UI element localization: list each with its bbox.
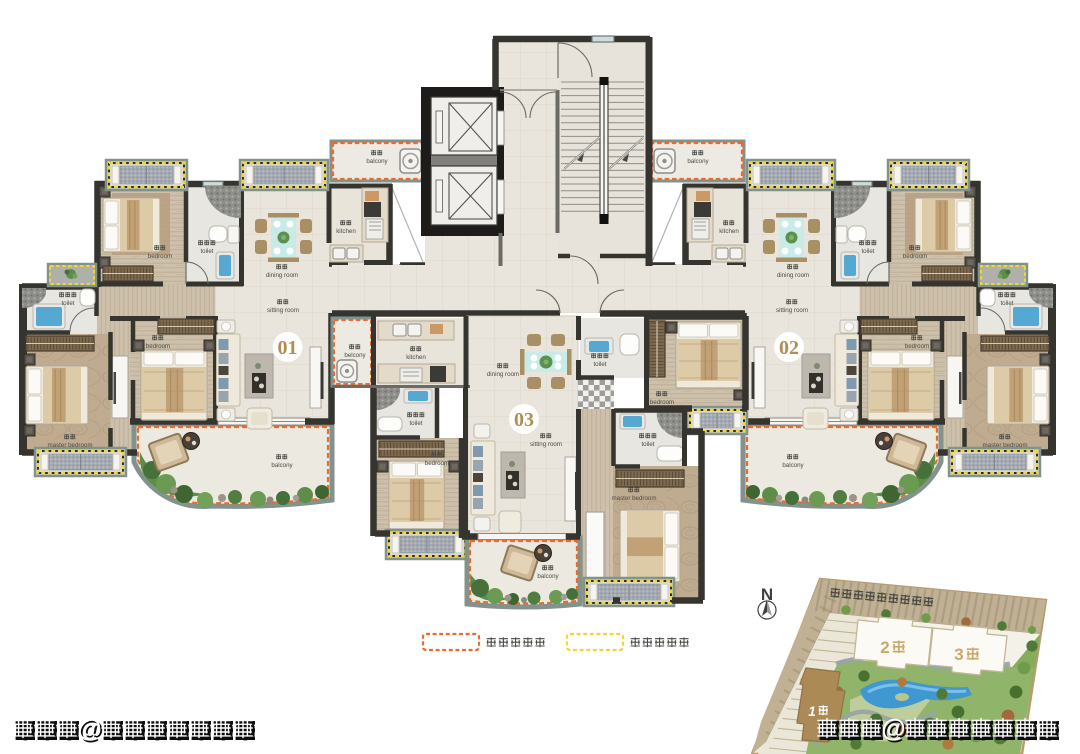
svg-text:kitchen: kitchen: [336, 228, 356, 235]
svg-text:master bedroom: master bedroom: [611, 495, 656, 502]
svg-text:2: 2: [880, 638, 889, 657]
svg-text:balcony: balcony: [271, 462, 293, 469]
svg-text:03: 03: [514, 409, 534, 431]
svg-text:bedroom: bedroom: [146, 343, 170, 350]
svg-text:toilet: toilet: [61, 300, 74, 307]
svg-text:balcony: balcony: [366, 158, 388, 165]
svg-text:sitting room: sitting room: [776, 307, 808, 314]
svg-text:balcony: balcony: [782, 462, 804, 469]
svg-text:master bedroom: master bedroom: [47, 442, 92, 449]
svg-text:3: 3: [954, 645, 963, 664]
svg-text:toilet: toilet: [409, 420, 422, 427]
svg-text:1: 1: [808, 704, 816, 719]
svg-text:bedroom: bedroom: [903, 253, 927, 260]
svg-text:balcony: balcony: [687, 158, 709, 165]
svg-text:kitchen: kitchen: [406, 354, 426, 361]
svg-text:belcony: belcony: [344, 352, 366, 359]
svg-text:sitting room: sitting room: [530, 441, 562, 448]
svg-text:toilet: toilet: [593, 361, 606, 368]
svg-text:01: 01: [278, 337, 298, 359]
svg-text:bedroom: bedroom: [148, 253, 172, 260]
svg-text:toilet: toilet: [200, 248, 213, 255]
svg-text:balcony: balcony: [537, 573, 559, 580]
svg-text:dining room: dining room: [266, 272, 298, 279]
svg-text:bedroom: bedroom: [905, 343, 929, 350]
svg-text:toilet: toilet: [641, 441, 654, 448]
svg-text:@: @: [881, 715, 905, 743]
svg-text:bedroom: bedroom: [650, 399, 674, 406]
svg-text:sitting room: sitting room: [267, 307, 299, 314]
svg-text:kitchen: kitchen: [719, 228, 739, 235]
svg-text:dining room: dining room: [487, 371, 519, 378]
svg-text:toilet: toilet: [861, 248, 874, 255]
svg-text:toilet: toilet: [1000, 300, 1013, 307]
svg-text:02: 02: [779, 337, 799, 359]
svg-text:bedroom: bedroom: [425, 460, 449, 467]
svg-text:@: @: [77, 715, 101, 743]
svg-text:master bedroom: master bedroom: [982, 442, 1027, 449]
svg-text:dining room: dining room: [777, 272, 809, 279]
